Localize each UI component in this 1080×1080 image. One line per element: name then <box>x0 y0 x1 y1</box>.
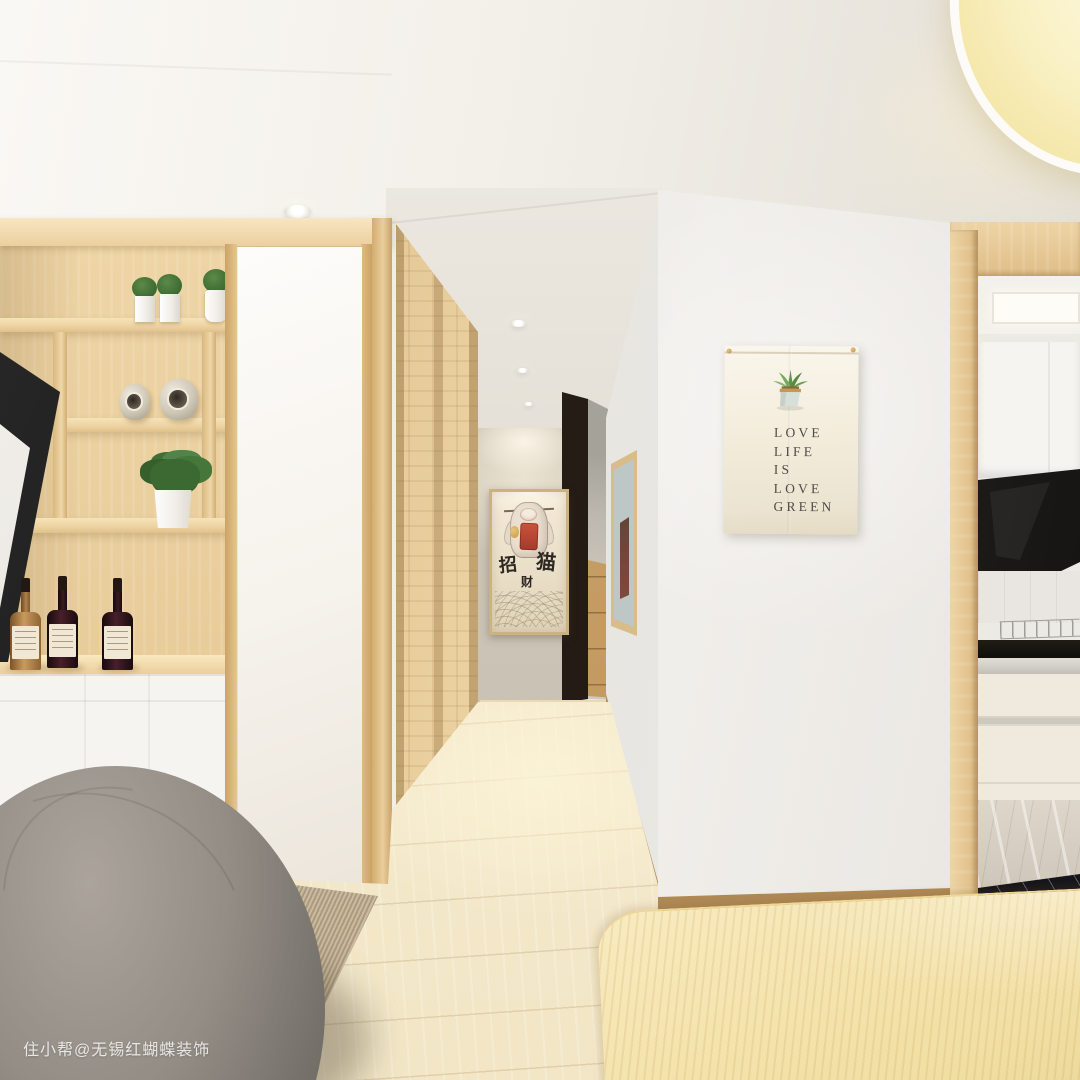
ceramic-vase <box>160 379 198 420</box>
hallway-downlight-2 <box>517 368 528 373</box>
tall-door-frame <box>225 244 237 886</box>
hanging-pin <box>851 347 856 352</box>
wine-label <box>49 624 76 657</box>
kitchen-upper-cabinets <box>978 342 1080 478</box>
shelf-divider <box>202 332 216 518</box>
cat-face <box>520 508 537 521</box>
hanging-pin <box>727 349 732 354</box>
potted-plant-pot <box>152 490 194 528</box>
cabinet-top-beam <box>0 218 392 246</box>
hallway-downlight-3 <box>524 402 533 406</box>
kitchen-base-drawers <box>978 674 1080 800</box>
hanging-text: LOVE LIFE IS LOVE GREEN <box>773 424 835 517</box>
tapestry-character-left: 招 <box>498 555 518 575</box>
kitchen-door-frame <box>950 230 978 914</box>
cat-bell <box>510 526 519 538</box>
ceramic-vase <box>120 384 150 420</box>
kitchen-marble-floor <box>978 800 1080 888</box>
hanging-text-line: GREEN <box>773 498 834 517</box>
wave-pattern <box>495 591 563 627</box>
wine-label <box>12 626 39 659</box>
cooktop <box>978 640 1080 660</box>
mini-planter <box>135 296 155 322</box>
hanging-text-line: LIFE <box>774 442 835 461</box>
kitchen-backsplash <box>978 571 1080 623</box>
succulent-graphic <box>761 358 819 412</box>
hanging-text-line: LOVE <box>774 480 835 499</box>
tall-white-cabinet-door <box>237 247 362 884</box>
lucky-cat-tapestry: 招 财 猫 <box>489 489 569 635</box>
wine-label <box>104 626 131 659</box>
recessed-downlight <box>284 205 311 218</box>
watermark: 住小帮@无锡红蝴蝶装饰 <box>23 1036 210 1060</box>
tapestry-character-center: 财 <box>521 576 533 588</box>
cat-red-vest <box>520 523 539 551</box>
interior-render: 招 财 猫 <box>0 0 1080 1080</box>
shelf-divider <box>53 332 67 518</box>
wood-dining-table <box>597 886 1080 1080</box>
hanging-text-line: LOVE <box>774 424 835 443</box>
kitchen-counter-edge <box>978 658 1080 674</box>
hanging-text-line: IS <box>774 461 835 480</box>
kitchen-light-panel <box>992 292 1080 324</box>
love-green-wall-hanging: LOVE LIFE IS LOVE GREEN <box>723 346 858 535</box>
hallway-downlight-1 <box>511 320 526 327</box>
potted-plant-foliage <box>150 459 200 493</box>
mini-planter <box>205 290 227 322</box>
mini-planter <box>160 294 180 322</box>
stove-rack <box>1000 619 1080 640</box>
lucky-cat-graphic <box>510 502 548 558</box>
cabinet-side-panel <box>372 218 392 894</box>
tapestry-character-right: 猫 <box>535 552 557 574</box>
